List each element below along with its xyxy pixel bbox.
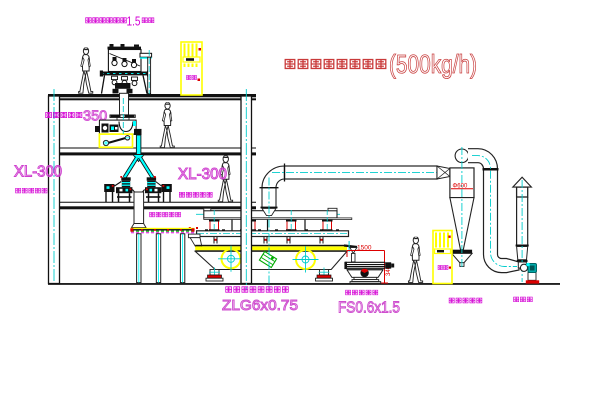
svg-text:(500kg/h): (500kg/h) xyxy=(389,49,477,79)
svg-text:XL-300: XL-300 xyxy=(178,166,227,183)
svg-text:1500: 1500 xyxy=(357,245,372,252)
svg-text:XL-300: XL-300 xyxy=(14,164,62,181)
svg-text:1.5: 1.5 xyxy=(127,15,141,29)
svg-text:ZLG6x0.75: ZLG6x0.75 xyxy=(222,297,298,314)
svg-text:FS0.6x1.5: FS0.6x1.5 xyxy=(338,300,400,317)
